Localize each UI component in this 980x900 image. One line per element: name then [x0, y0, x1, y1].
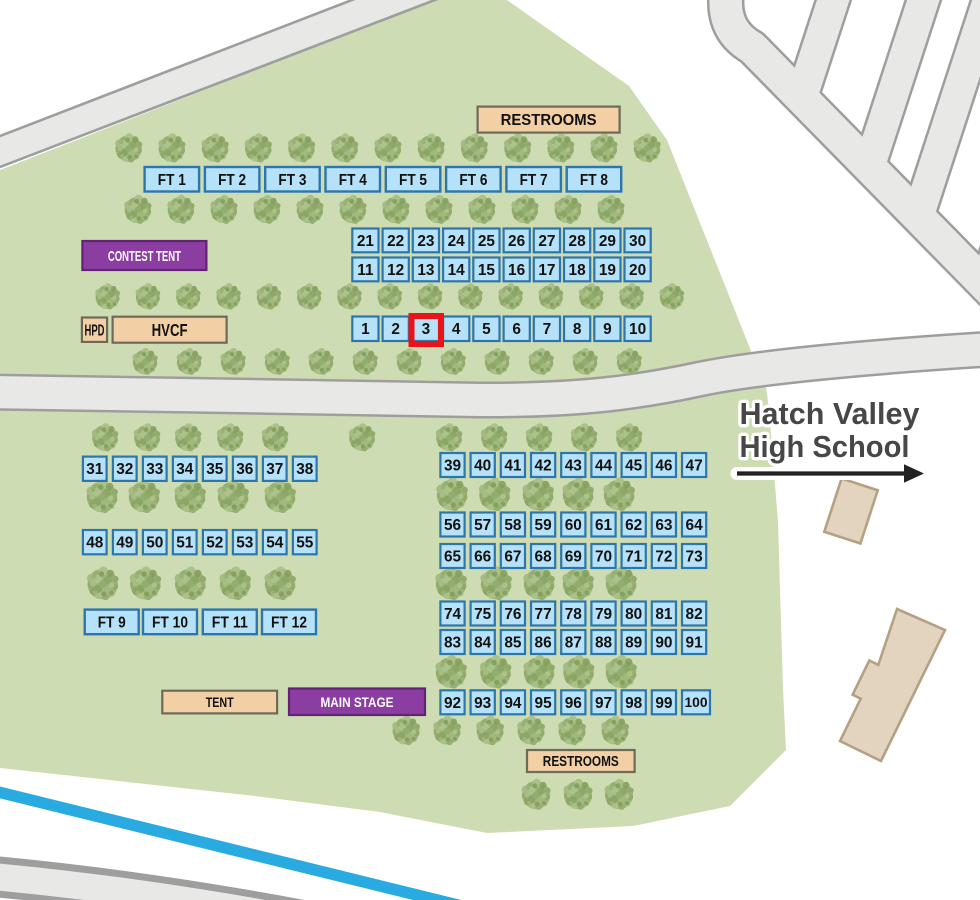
svg-text:12: 12	[387, 262, 404, 279]
svg-text:82: 82	[686, 606, 703, 623]
svg-text:88: 88	[595, 635, 613, 652]
svg-text:RESTROOMS: RESTROOMS	[543, 754, 619, 770]
svg-text:10: 10	[629, 321, 646, 338]
svg-text:34: 34	[176, 461, 194, 478]
svg-text:7: 7	[543, 321, 552, 338]
svg-text:2: 2	[391, 321, 400, 338]
svg-text:20: 20	[629, 262, 646, 279]
svg-text:31: 31	[86, 461, 104, 478]
svg-text:71: 71	[625, 549, 643, 566]
svg-text:32: 32	[116, 461, 133, 478]
svg-text:HPD: HPD	[85, 322, 105, 339]
svg-text:41: 41	[504, 458, 522, 475]
svg-text:95: 95	[535, 695, 553, 712]
svg-text:47: 47	[686, 458, 703, 475]
svg-text:MAIN STAGE: MAIN STAGE	[321, 695, 394, 711]
svg-text:FT 3: FT 3	[278, 172, 306, 189]
svg-text:26: 26	[508, 233, 525, 250]
svg-text:56: 56	[444, 517, 461, 534]
svg-text:11: 11	[357, 262, 374, 279]
svg-text:57: 57	[474, 517, 491, 534]
svg-text:100: 100	[684, 695, 707, 710]
svg-text:FT 5: FT 5	[399, 172, 427, 189]
svg-text:91: 91	[686, 635, 704, 652]
svg-text:Hatch Valley: Hatch Valley	[740, 397, 920, 431]
svg-text:FT 6: FT 6	[459, 172, 487, 189]
svg-text:30: 30	[629, 233, 646, 250]
svg-text:74: 74	[444, 606, 462, 623]
svg-text:96: 96	[565, 695, 582, 712]
svg-text:85: 85	[504, 635, 522, 652]
svg-text:5: 5	[482, 321, 491, 338]
svg-text:55: 55	[296, 535, 314, 552]
svg-text:90: 90	[655, 635, 672, 652]
svg-text:14: 14	[448, 262, 466, 279]
svg-text:60: 60	[565, 517, 582, 534]
svg-text:4: 4	[452, 321, 461, 338]
svg-text:22: 22	[387, 233, 404, 250]
svg-text:97: 97	[595, 695, 612, 712]
svg-text:19: 19	[599, 262, 616, 279]
svg-text:RESTROOMS: RESTROOMS	[501, 112, 597, 129]
svg-text:FT 9: FT 9	[98, 615, 126, 632]
svg-text:25: 25	[478, 233, 496, 250]
svg-text:40: 40	[474, 458, 491, 475]
svg-text:28: 28	[569, 233, 587, 250]
svg-text:66: 66	[474, 549, 491, 566]
svg-text:49: 49	[116, 535, 133, 552]
svg-text:27: 27	[538, 233, 555, 250]
svg-text:18: 18	[569, 262, 587, 279]
svg-text:38: 38	[296, 461, 314, 478]
svg-text:73: 73	[686, 549, 703, 566]
svg-text:FT 2: FT 2	[218, 172, 246, 189]
svg-text:16: 16	[508, 262, 525, 279]
svg-text:52: 52	[206, 535, 223, 552]
svg-text:50: 50	[146, 535, 163, 552]
svg-text:29: 29	[599, 233, 616, 250]
svg-text:FT 1: FT 1	[158, 172, 186, 189]
svg-text:3: 3	[422, 321, 431, 338]
svg-text:35: 35	[206, 461, 224, 478]
svg-text:17: 17	[538, 262, 555, 279]
svg-text:89: 89	[625, 635, 642, 652]
svg-text:81: 81	[655, 606, 673, 623]
svg-text:79: 79	[595, 606, 612, 623]
svg-text:HVCF: HVCF	[152, 320, 188, 340]
svg-text:93: 93	[474, 695, 491, 712]
svg-text:86: 86	[535, 635, 552, 652]
svg-text:67: 67	[504, 549, 521, 566]
svg-text:59: 59	[535, 517, 552, 534]
svg-text:44: 44	[595, 458, 613, 475]
svg-text:FT 12: FT 12	[271, 615, 307, 632]
svg-text:98: 98	[625, 695, 643, 712]
svg-text:61: 61	[595, 517, 613, 534]
svg-text:54: 54	[266, 535, 284, 552]
svg-text:TENT: TENT	[206, 695, 235, 710]
svg-text:39: 39	[444, 458, 461, 475]
svg-text:58: 58	[504, 517, 522, 534]
svg-text:9: 9	[603, 321, 612, 338]
svg-text:87: 87	[565, 635, 582, 652]
svg-text:36: 36	[236, 461, 253, 478]
svg-text:FT 10: FT 10	[152, 615, 188, 632]
svg-text:63: 63	[655, 517, 672, 534]
svg-text:62: 62	[625, 517, 642, 534]
svg-text:42: 42	[535, 458, 552, 475]
svg-text:64: 64	[686, 517, 704, 534]
svg-text:43: 43	[565, 458, 582, 475]
svg-text:13: 13	[417, 262, 434, 279]
svg-text:33: 33	[146, 461, 163, 478]
svg-text:75: 75	[474, 606, 492, 623]
svg-text:FT 7: FT 7	[520, 172, 548, 189]
svg-text:6: 6	[512, 321, 521, 338]
svg-text:1: 1	[361, 321, 370, 338]
svg-text:23: 23	[417, 233, 434, 250]
svg-text:FT 11: FT 11	[212, 615, 248, 632]
svg-text:94: 94	[504, 695, 522, 712]
svg-text:48: 48	[86, 535, 104, 552]
svg-text:24: 24	[448, 233, 466, 250]
svg-text:80: 80	[625, 606, 642, 623]
svg-text:45: 45	[625, 458, 643, 475]
svg-text:15: 15	[478, 262, 496, 279]
svg-text:92: 92	[444, 695, 461, 712]
svg-text:68: 68	[535, 549, 553, 566]
svg-text:21: 21	[357, 233, 375, 250]
svg-text:84: 84	[474, 635, 492, 652]
svg-text:High School: High School	[740, 430, 910, 464]
svg-text:70: 70	[595, 549, 612, 566]
svg-text:83: 83	[444, 635, 461, 652]
svg-text:FT 8: FT 8	[580, 172, 608, 189]
svg-text:76: 76	[504, 606, 521, 623]
svg-text:CONTEST TENT: CONTEST TENT	[108, 249, 181, 265]
svg-text:78: 78	[565, 606, 583, 623]
svg-text:FT 4: FT 4	[339, 172, 367, 189]
svg-text:72: 72	[655, 549, 672, 566]
svg-text:69: 69	[565, 549, 582, 566]
svg-text:37: 37	[266, 461, 283, 478]
svg-text:51: 51	[176, 535, 194, 552]
svg-text:65: 65	[444, 549, 462, 566]
svg-text:77: 77	[535, 606, 552, 623]
svg-text:53: 53	[236, 535, 253, 552]
svg-text:99: 99	[655, 695, 672, 712]
svg-text:46: 46	[655, 458, 672, 475]
svg-text:8: 8	[573, 321, 582, 338]
